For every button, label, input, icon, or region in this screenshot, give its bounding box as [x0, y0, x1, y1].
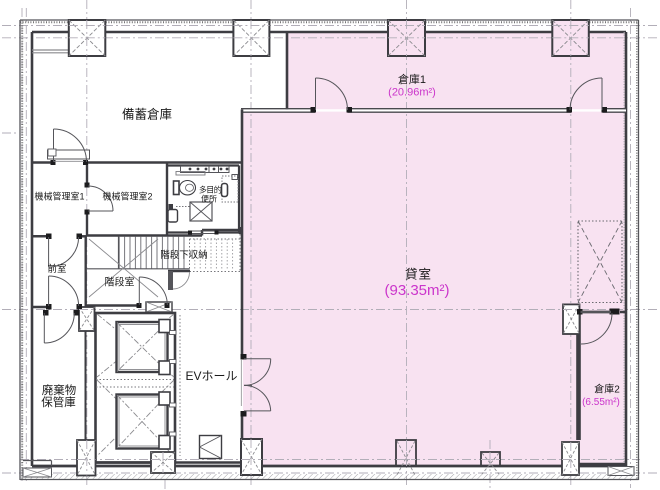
svg-text:前室: 前室 [47, 263, 66, 275]
svg-text:階段下収納: 階段下収納 [160, 249, 208, 261]
svg-text:倉庫1: 倉庫1 [398, 72, 426, 86]
svg-text:多目的: 多目的 [199, 185, 222, 195]
svg-text:保管庫: 保管庫 [41, 395, 76, 409]
svg-text:(93.35m²): (93.35m²) [384, 282, 449, 299]
svg-text:(20.96m²): (20.96m²) [388, 87, 436, 99]
svg-text:倉庫2: 倉庫2 [594, 383, 620, 396]
svg-text:機械管理室1: 機械管理室1 [34, 191, 84, 202]
svg-text:(6.55m²): (6.55m²) [582, 397, 620, 408]
svg-text:貸室: 貸室 [405, 267, 432, 282]
svg-text:備蓄倉庫: 備蓄倉庫 [122, 107, 172, 122]
svg-text:廃棄物: 廃棄物 [42, 383, 77, 397]
svg-text:EVホール: EVホール [185, 369, 237, 383]
svg-text:階段室: 階段室 [105, 276, 135, 289]
svg-text:機械管理室2: 機械管理室2 [102, 191, 152, 202]
svg-text:便所: 便所 [201, 194, 217, 204]
